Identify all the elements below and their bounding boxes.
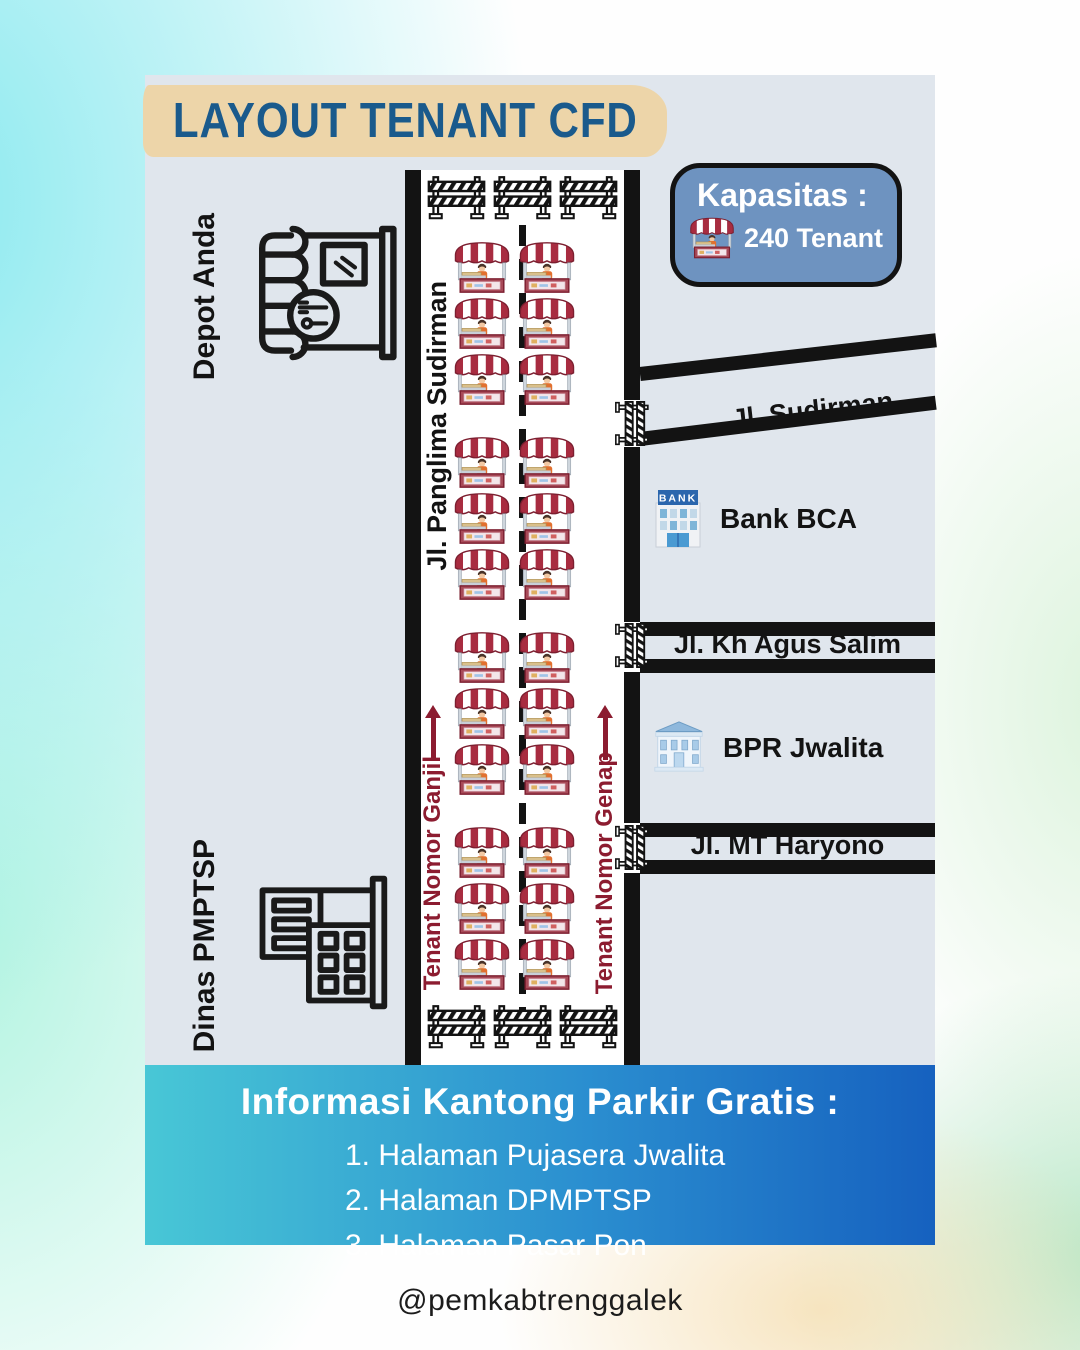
jl-mt-haryono-lower-edge [640, 860, 935, 874]
parking-info-heading: Informasi Kantong Parkir Gratis : [145, 1081, 935, 1123]
tenant-stall-icon [453, 240, 511, 295]
tenant-stall-icon [518, 825, 576, 880]
jl-mt-haryono-label: Jl. MT Haryono [640, 830, 935, 861]
lane-label-even-tenants: Tenant Nomor Genap [585, 766, 625, 981]
page-title: LAYOUT TENANT CFD [173, 93, 638, 149]
tenant-stall-icon [518, 686, 576, 741]
capacity-label: Kapasitas : [697, 177, 897, 214]
main-road: Jl. Panglima Sudirman Tenant Nomor Ganji… [405, 170, 640, 1065]
social-handle: @pemkabtrenggalek [0, 1284, 1080, 1318]
tenant-stall-icon [689, 216, 735, 260]
parking-info-item: 1. Halaman Pujasera Jwalita [345, 1133, 935, 1178]
road-right-border-segment [624, 672, 640, 823]
tenant-stall-icon [518, 240, 576, 295]
tenant-stall-icon [453, 742, 511, 797]
road-barrier-icon [615, 825, 650, 871]
road-barrier-icon [559, 1004, 618, 1049]
tenant-stall-icon [453, 491, 511, 546]
parking-info-list: 1. Halaman Pujasera Jwalita 2. Halaman D… [345, 1133, 935, 1268]
road-right-border-segment [624, 447, 640, 622]
road-barrier-icon [427, 175, 486, 220]
jl-kh-agus-salim-label: Jl. Kh Agus Salim [640, 629, 935, 660]
tenant-stall-icon [453, 630, 511, 685]
road-barrier-icon [615, 401, 650, 447]
landmark-dinas-pmptsp-label: Dinas PMPTSP [183, 850, 227, 1042]
tenant-stall-icon [453, 352, 511, 407]
tenant-stall-icon [518, 352, 576, 407]
road-barrier-icon [493, 175, 552, 220]
tenant-stall-icon [518, 630, 576, 685]
tenant-stall-icon [518, 881, 576, 936]
title-band: LAYOUT TENANT CFD [143, 85, 667, 157]
parking-info-item: 3. Halaman Pasar Pon [345, 1223, 935, 1268]
classical-bank-icon [650, 718, 708, 774]
jl-sudirman-upper-edge [639, 333, 937, 381]
bank-building-icon: BANK [653, 487, 703, 551]
intersection-barrier-icon [615, 825, 650, 871]
landmark-depot-anda-label: Depot Anda [183, 213, 227, 381]
tenant-stall-icon [453, 296, 511, 351]
government-office-icon [248, 870, 393, 1015]
lane-label-odd-tenants: Tenant Nomor Ganjil [413, 766, 453, 981]
lane-direction-arrow-left [431, 710, 436, 760]
tenant-stall-icon [453, 547, 511, 602]
tenant-stall-icon [453, 435, 511, 490]
tenant-stall-icon [518, 491, 576, 546]
capacity-badge: Kapasitas : [670, 163, 902, 287]
tenant-stall-icon [453, 686, 511, 741]
top-barrier-row [421, 175, 624, 220]
tenant-stall-icon [518, 742, 576, 797]
intersection-barrier-icon [615, 401, 650, 447]
tenant-stall-icon [518, 937, 576, 992]
road-barrier-icon [493, 1004, 552, 1049]
tenant-stall-icon [453, 881, 511, 936]
tenant-stall-icon [518, 435, 576, 490]
landmark-bpr-jwalita-label: BPR Jwalita [723, 732, 883, 764]
tenant-stall-icon [518, 547, 576, 602]
main-road-name: Jl. Panglima Sudirman [415, 282, 459, 569]
stall-icon-slot [689, 216, 735, 260]
tenant-stall-icon [453, 937, 511, 992]
road-right-border-segment [624, 873, 640, 1065]
tenant-stall-icon [453, 825, 511, 880]
restaurant-storefront-icon [243, 213, 403, 373]
landmark-bank-bca-label: Bank BCA [720, 503, 857, 535]
intersection-barrier-icon [615, 623, 650, 669]
parking-info-box: Informasi Kantong Parkir Gratis : 1. Hal… [145, 1065, 935, 1245]
road-barrier-icon [427, 1004, 486, 1049]
road-right-border-segment [624, 170, 640, 400]
svg-text:BANK: BANK [659, 493, 697, 505]
parking-info-item: 2. Halaman DPMPTSP [345, 1178, 935, 1223]
jl-kh-agus-salim-lower-edge [640, 659, 935, 673]
road-barrier-icon [559, 175, 618, 220]
layout-poster-panel: LAYOUT TENANT CFD Kapasitas : [145, 75, 935, 1245]
capacity-value: 240 Tenant [744, 223, 883, 254]
bottom-barrier-row [421, 1004, 624, 1049]
tenant-stall-icon [518, 296, 576, 351]
road-barrier-icon [615, 623, 650, 669]
